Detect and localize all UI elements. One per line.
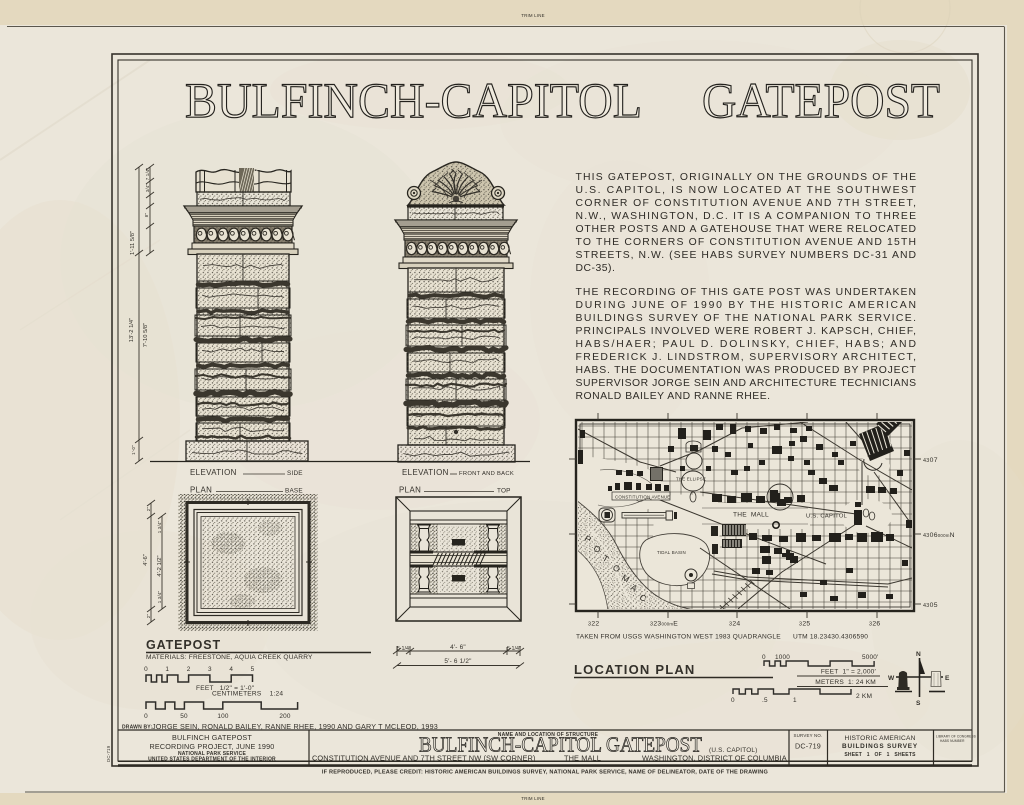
svg-text:PLAN: PLAN bbox=[190, 486, 212, 495]
svg-text:4: 4 bbox=[229, 666, 233, 673]
svg-text:THE MALL: THE MALL bbox=[733, 512, 769, 519]
svg-text:BUILDINGS SURVEY OF THE NATION: BUILDINGS SURVEY OF THE NATIONAL PARK SE… bbox=[576, 313, 917, 324]
svg-text:324: 324 bbox=[729, 621, 740, 628]
svg-text:MATERIALS: FREESTONE, AQUIA CR: MATERIALS: FREESTONE, AQUIA CREEK QUARRY bbox=[146, 654, 313, 661]
svg-text:4′- 6": 4′- 6" bbox=[450, 644, 466, 651]
svg-text:3/4": 3/4" bbox=[145, 184, 150, 193]
svg-text:SIDE: SIDE bbox=[287, 470, 303, 477]
svg-text:TRIM LINE: TRIM LINE bbox=[521, 796, 545, 801]
svg-text:5000′: 5000′ bbox=[862, 654, 879, 661]
svg-text:0: 0 bbox=[144, 713, 148, 720]
svg-text:7 1/4": 7 1/4" bbox=[145, 168, 150, 181]
svg-text:325: 325 bbox=[799, 621, 810, 628]
svg-text:U.S. CAPITOL, IS NOW LOCATED A: U.S. CAPITOL, IS NOW LOCATED AT THE SOUT… bbox=[576, 185, 917, 196]
svg-text:CORNER OF CONSTITUTION AVENUE: CORNER OF CONSTITUTION AVENUE AND 7TH ST… bbox=[576, 198, 917, 209]
svg-text:THE MALL: THE MALL bbox=[564, 754, 601, 763]
svg-text:GATEPOST: GATEPOST bbox=[702, 72, 940, 128]
svg-text:TOP: TOP bbox=[497, 488, 511, 495]
svg-text:HABS. THE DOCUMENTATION WAS PR: HABS. THE DOCUMENTATION WAS PRODUCED BY … bbox=[576, 365, 917, 376]
svg-text:200: 200 bbox=[279, 713, 291, 720]
svg-text:DURING JUNE OF 1990 BY THE HIS: DURING JUNE OF 1990 BY THE HISTORIC AMER… bbox=[576, 300, 917, 311]
svg-text:DC-719: DC-719 bbox=[795, 742, 821, 751]
svg-text:UNITED STATES DEPARTMENT OF TH: UNITED STATES DEPARTMENT OF THE INTERIOR bbox=[148, 757, 276, 763]
svg-text:WASHINGTON, DISTRICT OF COLUMB: WASHINGTON, DISTRICT OF COLUMBIA bbox=[642, 754, 787, 763]
svg-text:13′-2 1/4": 13′-2 1/4" bbox=[129, 318, 135, 342]
svg-text:LOCATION PLAN: LOCATION PLAN bbox=[574, 662, 696, 677]
svg-text:0: 0 bbox=[731, 697, 735, 704]
svg-text:HISTORIC AMERICAN: HISTORIC AMERICAN bbox=[844, 735, 915, 742]
svg-text:CENTIMETERS 1:24: CENTIMETERS 1:24 bbox=[212, 691, 283, 698]
svg-text:DC-35).: DC-35). bbox=[576, 263, 616, 274]
svg-text:STREETS, N.W. (SEE HABS SURVEY: STREETS, N.W. (SEE HABS SURVEY NUMBERS D… bbox=[576, 250, 917, 261]
svg-text:5 1/4": 5 1/4" bbox=[397, 646, 411, 652]
svg-text:BASE: BASE bbox=[285, 488, 303, 495]
svg-text:CONSTITUTION AVENUE: CONSTITUTION AVENUE bbox=[615, 494, 670, 499]
svg-text:323000mE: 323000mE bbox=[650, 621, 678, 628]
svg-text:7′-10 5/8": 7′-10 5/8" bbox=[143, 323, 149, 347]
svg-text:50: 50 bbox=[180, 713, 188, 720]
svg-text:TO THE CORNERS OF CONSTITUTION: TO THE CORNERS OF CONSTITUTION AVENUE AN… bbox=[576, 237, 917, 248]
svg-text:ELEVATION: ELEVATION bbox=[190, 468, 237, 477]
svg-text:FREDERICK J. LINDSTROM, SUPERV: FREDERICK J. LINDSTROM, SUPERVISORY ARCH… bbox=[576, 352, 917, 363]
svg-text:RECORDING PROJECT, JUNE 1990: RECORDING PROJECT, JUNE 1990 bbox=[149, 742, 274, 751]
svg-text:.5: .5 bbox=[762, 697, 768, 704]
svg-text:2 KM: 2 KM bbox=[856, 693, 872, 700]
svg-text:E: E bbox=[945, 675, 950, 682]
svg-text:4′-6": 4′-6" bbox=[143, 554, 149, 566]
svg-text:THIS GATEPOST, ORIGINALLY ON T: THIS GATEPOST, ORIGINALLY ON THE GROUNDS… bbox=[576, 172, 917, 183]
svg-text:BUILDINGS SURVEY: BUILDINGS SURVEY bbox=[842, 743, 918, 750]
svg-text:1: 1 bbox=[165, 666, 169, 673]
svg-text:RONALD BAILEY AND RANNE RHEE.: RONALD BAILEY AND RANNE RHEE. bbox=[576, 391, 771, 402]
svg-text:1′-0": 1′-0" bbox=[131, 445, 136, 455]
svg-text:5: 5 bbox=[251, 666, 255, 673]
svg-text:1000: 1000 bbox=[775, 654, 790, 661]
svg-text:2": 2" bbox=[146, 507, 151, 512]
svg-text:TIDAL BASIN: TIDAL BASIN bbox=[657, 550, 686, 555]
svg-text:PLAN: PLAN bbox=[399, 486, 421, 495]
svg-text:1 3/4": 1 3/4" bbox=[157, 521, 162, 534]
svg-text:DC-719: DC-719 bbox=[106, 745, 111, 762]
svg-text:5 1/4": 5 1/4" bbox=[507, 646, 521, 652]
svg-text:THE ELLIPSE: THE ELLIPSE bbox=[676, 477, 706, 482]
svg-text:TAKEN FROM USGS WASHINGTON WES: TAKEN FROM USGS WASHINGTON WEST 1983 QUA… bbox=[576, 634, 868, 641]
svg-text:1: 1 bbox=[793, 697, 797, 704]
svg-text:IF REPRODUCED, PLEASE CREDIT:: IF REPRODUCED, PLEASE CREDIT: HISTORIC A… bbox=[322, 770, 768, 776]
svg-text:METERS 1: 24 KM: METERS 1: 24 KM bbox=[815, 679, 876, 686]
svg-text:BULFINCH-CAPITOL: BULFINCH-CAPITOL bbox=[185, 72, 642, 128]
svg-text:4305: 4305 bbox=[923, 602, 938, 609]
svg-text:1′-11 5/8": 1′-11 5/8" bbox=[130, 231, 136, 255]
svg-text:W: W bbox=[888, 675, 895, 682]
svg-text:100: 100 bbox=[217, 713, 229, 720]
svg-text:N.W., WASHINGTON, D.C. IT IS A: N.W., WASHINGTON, D.C. IT IS A COMPANION… bbox=[576, 211, 917, 222]
svg-text:LIBRARY OF CONGRESS: LIBRARY OF CONGRESS bbox=[936, 735, 976, 739]
svg-text:2": 2" bbox=[146, 614, 151, 619]
svg-text:3: 3 bbox=[208, 666, 212, 673]
svg-text:0: 0 bbox=[144, 666, 148, 673]
svg-text:N: N bbox=[916, 651, 921, 658]
svg-text:CONSTITUTION AVENUE AND 7TH S: CONSTITUTION AVENUE AND 7TH STREET NW (S… bbox=[312, 754, 535, 763]
svg-text:ELEVATION: ELEVATION bbox=[402, 468, 449, 477]
svg-text:5′- 6 1/2": 5′- 6 1/2" bbox=[444, 658, 471, 665]
svg-text:FRONT AND BACK: FRONT AND BACK bbox=[459, 471, 514, 477]
svg-text:HABS NUMBER: HABS NUMBER bbox=[940, 739, 965, 743]
svg-text:8": 8" bbox=[144, 213, 149, 218]
svg-text:2: 2 bbox=[187, 666, 191, 673]
svg-text:SURVEY NO.: SURVEY NO. bbox=[794, 733, 823, 738]
svg-text:OTHER POSTS AND A GATEHOUSE TH: OTHER POSTS AND A GATEHOUSE THAT WERE RE… bbox=[576, 224, 917, 235]
svg-text:322: 322 bbox=[588, 621, 599, 628]
svg-text:4306000mN: 4306000mN bbox=[923, 532, 955, 539]
svg-text:S: S bbox=[916, 700, 921, 707]
svg-text:0: 0 bbox=[762, 654, 766, 661]
svg-text:THE RECORDING OF THIS GATE POS: THE RECORDING OF THIS GATE POST WAS UNDE… bbox=[576, 287, 917, 298]
svg-text:FEET 1" = 2,000′: FEET 1" = 2,000′ bbox=[821, 669, 877, 676]
svg-text:U.S. CAPITOL: U.S. CAPITOL bbox=[806, 514, 848, 520]
svg-text:PRINCIPALS INVOLVED WERE ROBER: PRINCIPALS INVOLVED WERE ROBERT J. KAPSC… bbox=[576, 326, 917, 337]
svg-text:326: 326 bbox=[869, 621, 880, 628]
svg-text:4′-2 1/2": 4′-2 1/2" bbox=[157, 555, 163, 576]
svg-text:1 3/4": 1 3/4" bbox=[157, 591, 162, 604]
svg-text:TRIM LINE: TRIM LINE bbox=[521, 13, 545, 18]
svg-text:SHEET 1 OF 1 SHEETS: SHEET 1 OF 1 SHEETS bbox=[844, 752, 916, 758]
svg-text:BULFINCH GATEPOST: BULFINCH GATEPOST bbox=[172, 733, 252, 742]
svg-text:SUPERVISOR JORGE SEIN AND ARCH: SUPERVISOR JORGE SEIN AND ARCHITECTURE T… bbox=[576, 378, 917, 389]
svg-text:GATEPOST: GATEPOST bbox=[146, 638, 221, 652]
svg-text:4307: 4307 bbox=[923, 457, 938, 464]
